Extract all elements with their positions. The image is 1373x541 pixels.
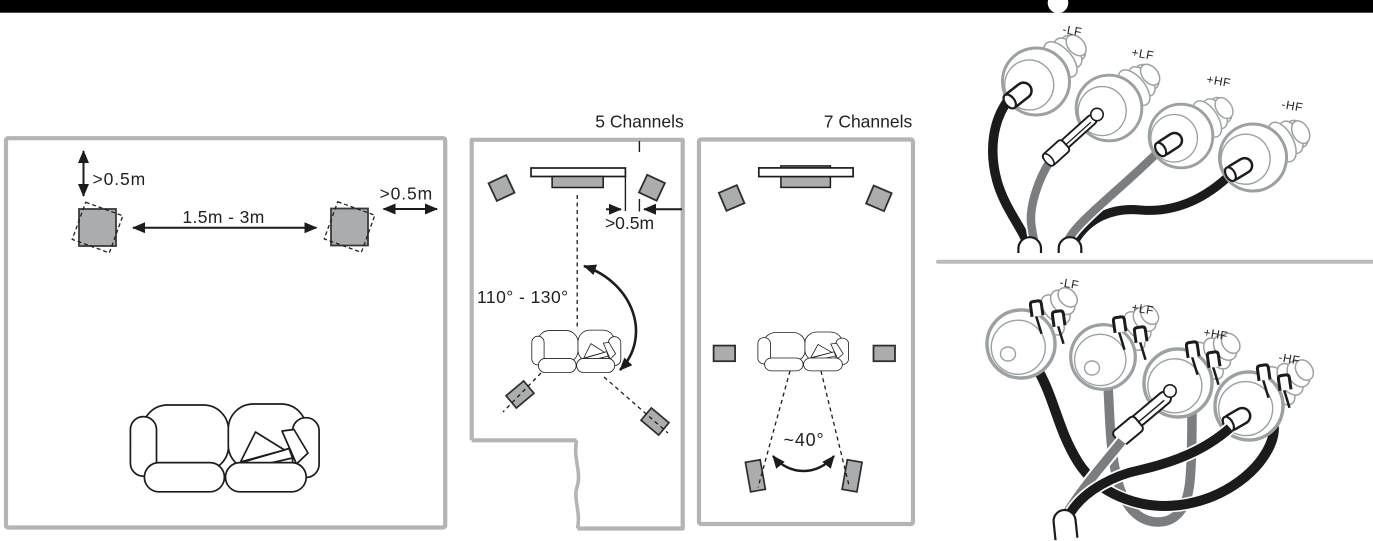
svg-text:1.5m - 3m: 1.5m - 3m: [182, 207, 264, 227]
svg-text:5 Channels: 5 Channels: [595, 112, 684, 132]
svg-text:>0.5m: >0.5m: [605, 213, 654, 233]
svg-text:110° - 130°: 110° - 130°: [477, 287, 569, 307]
svg-text:~40°: ~40°: [784, 430, 825, 450]
svg-text:>0.5m: >0.5m: [93, 169, 147, 189]
svg-text:>0.5m: >0.5m: [380, 184, 434, 204]
svg-text:7 Channels: 7 Channels: [824, 112, 913, 132]
